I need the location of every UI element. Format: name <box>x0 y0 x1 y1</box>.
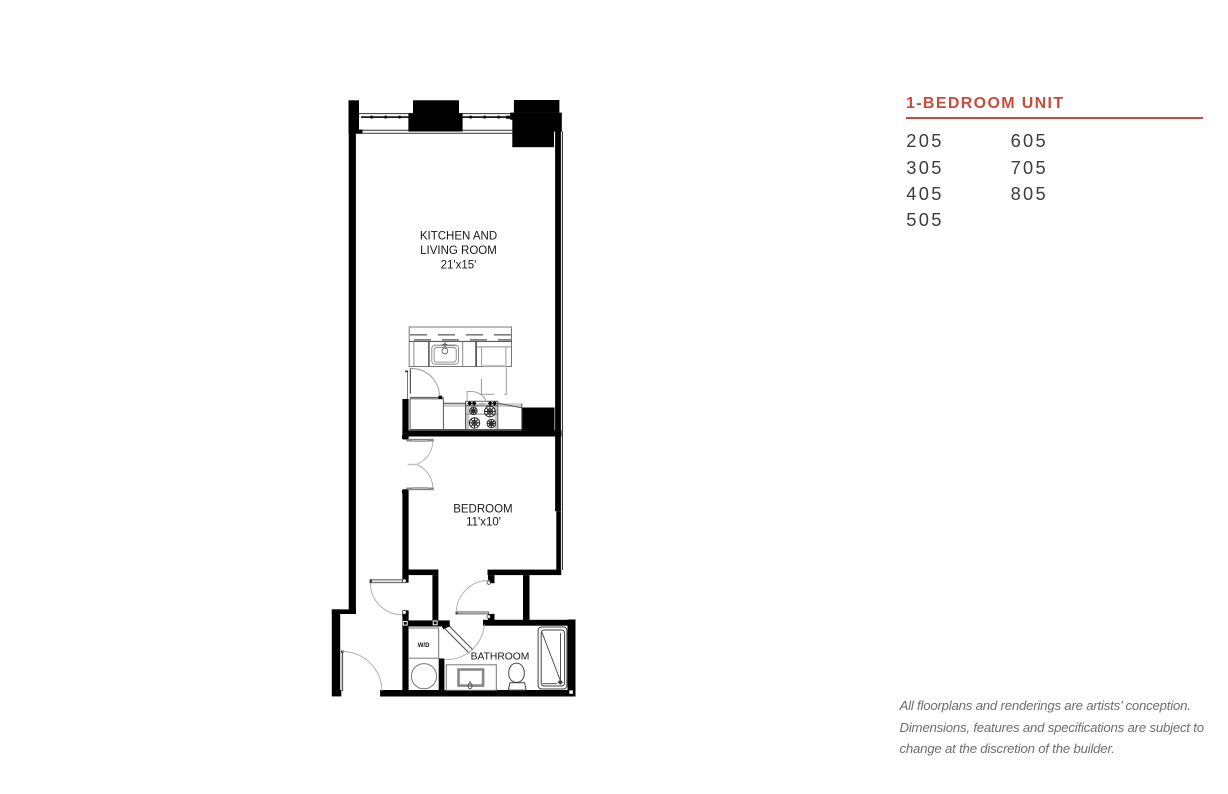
svg-text:BATHROOM: BATHROOM <box>471 652 530 663</box>
svg-text:W/D: W/D <box>418 643 430 649</box>
svg-text:KITCHEN AND: KITCHEN AND <box>420 230 497 242</box>
svg-text:11'x10': 11'x10' <box>466 517 501 529</box>
svg-text:BEDROOM: BEDROOM <box>453 503 512 515</box>
svg-text:21'x15': 21'x15' <box>441 260 477 272</box>
svg-text:LIVING ROOM: LIVING ROOM <box>420 245 497 257</box>
